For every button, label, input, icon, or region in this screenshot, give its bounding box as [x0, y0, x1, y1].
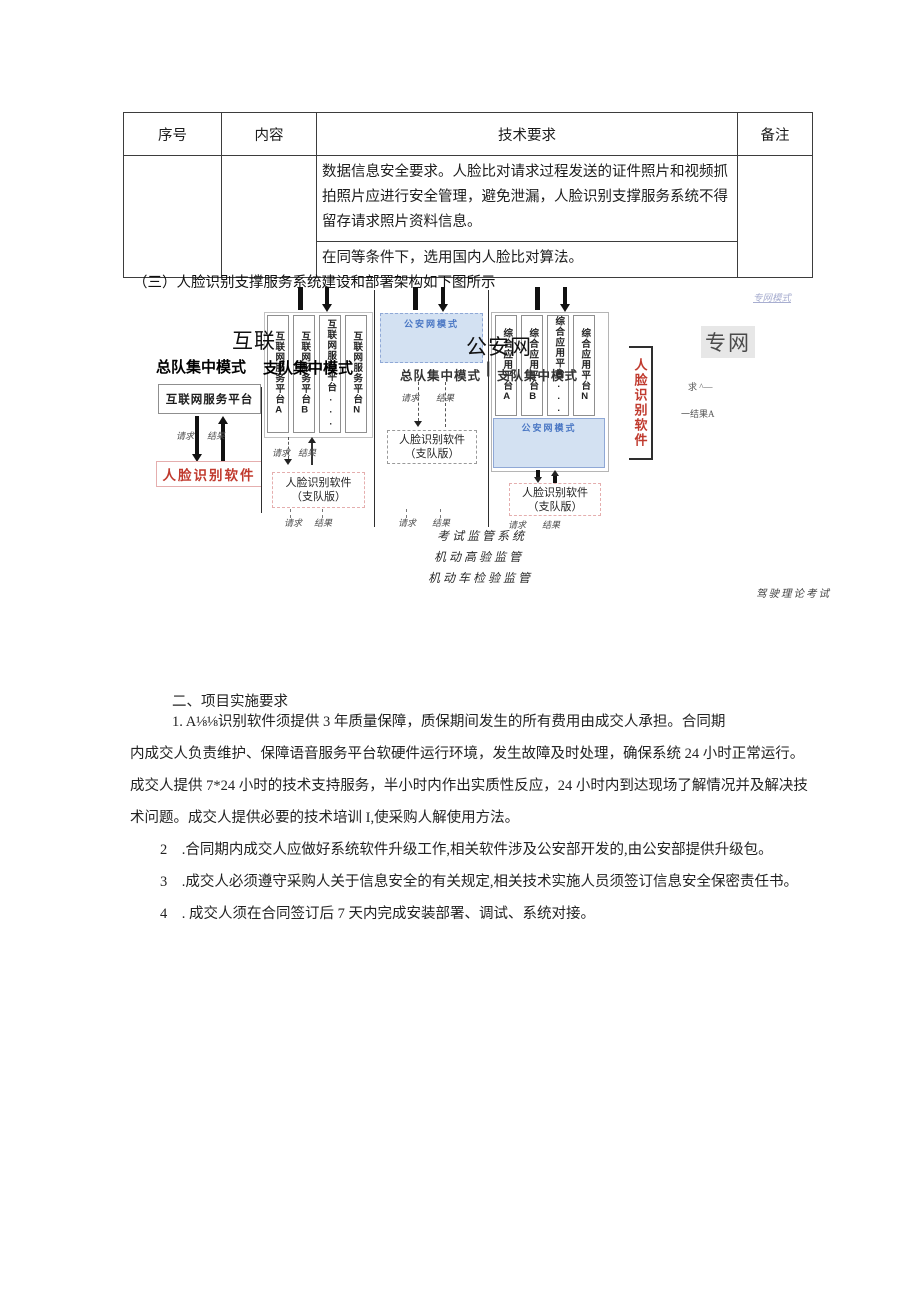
col-header-note: 备注 — [738, 113, 813, 156]
section-divider — [374, 290, 375, 527]
down-arrow — [560, 287, 570, 312]
result-up-arrow — [551, 470, 559, 483]
paragraph-3: 3 .成交人必须遵守采购人关于信息安全的有关规定,相关技术实施人员须签订信息安全… — [160, 870, 798, 891]
mode1-face-software-box: 人脸识别软件 — [156, 461, 262, 487]
down-arrow — [322, 287, 332, 312]
mode2-face-software-line2: （支队版） — [291, 490, 346, 504]
spec-table: 序号 内容 技术要求 备注 数据信息安全要求。人脸比对请求过程发送的证件照片和视… — [123, 112, 813, 278]
request-fragment: 求 ^— — [688, 380, 712, 393]
internet-overlay-text: 互联 — [232, 325, 276, 355]
mode2-face-software-line1: 人脸识别软件 — [286, 476, 352, 490]
mode1-title: 总队集中模式 — [156, 356, 246, 377]
mode2-title: 支队集中模式 — [263, 357, 353, 378]
app-platform-column-label: 综合应用平台N — [579, 328, 589, 403]
mode3-overlay-divider: | — [486, 360, 491, 378]
mode3-face-software-line2: （支队版） — [405, 447, 460, 461]
private-net-mode-link[interactable]: 专网模式 — [753, 290, 791, 304]
result-label: 结果 — [542, 518, 560, 531]
mode3-overlay-right: 支队集中模式 — [497, 365, 578, 384]
section-divider — [261, 387, 262, 513]
request-label: 请求 — [176, 429, 194, 442]
request-label: 请求 — [272, 446, 290, 459]
mode1-platform-box: 互联网服务平台 — [158, 384, 261, 414]
cell-note — [738, 156, 813, 278]
request-down-arrow — [414, 382, 422, 427]
request-label: 请求 — [398, 516, 416, 529]
caption-vehicle-exam-monitor: 机动高验监管 — [434, 548, 524, 565]
col-header-content: 内容 — [222, 113, 317, 156]
body-heading: 二、项目实施要求 — [172, 690, 288, 711]
paragraph-1-line-1: 1. A⅛⅛识别软件须提供 3 年质量保障，质保期间发生的所有费用由成交人承担。… — [172, 710, 725, 731]
result-fragment: 一结果A — [681, 407, 715, 420]
public-net-overlay-text: 公安网 — [466, 331, 532, 361]
up-line — [298, 287, 303, 310]
result-label: 结果 — [298, 446, 316, 459]
result-up-dashed-line — [445, 382, 446, 427]
col-header-requirements: 技术要求 — [317, 113, 738, 156]
table-header-row: 序号 内容 技术要求 备注 — [124, 113, 813, 156]
request-label: 请求 — [284, 516, 302, 529]
architecture-diagram: 互联 公安网 总队集中模式 互联网服务平台 请求 结果 人脸识别软件 互联网服务… — [150, 285, 870, 620]
face-software-vertical-label: 人脸识别软件 — [631, 358, 650, 448]
result-label: 结果 — [314, 516, 332, 529]
paragraph-1-line-4: 术问题。成交人提供必要的技术培训 I,使采购人解使用方法。 — [130, 806, 519, 827]
up-line — [535, 287, 540, 310]
mode3-police-net-header: 公安网模式 — [381, 317, 482, 330]
cell-requirement-1: 数据信息安全要求。人脸比对请求过程发送的证件照片和视频抓拍照片应进行安全管理，避… — [317, 156, 738, 242]
mode4-face-software-box: 人脸识别软件 （支队版） — [509, 483, 601, 516]
paragraph-2: 2 .合同期内成交人应做好系统软件升级工作,相关软件涉及公安部开发的,由公安部提… — [160, 838, 773, 859]
caption-theory-exam: 驾驶理论考试 — [756, 586, 831, 601]
private-net-overlay-text: 专网 — [701, 326, 755, 358]
down-arrow — [438, 287, 448, 312]
paragraph-1-line-2: 内成交人负责维护、保障语音服务平台软硬件运行环境，发生故障及时处理，确保系统 2… — [130, 742, 804, 763]
request-label: 请求 — [508, 518, 526, 531]
mode3-face-software-line1: 人脸识别软件 — [399, 433, 465, 447]
mode4-police-net-card: 公安网模式 — [493, 418, 605, 468]
result-label: 结果 — [207, 429, 225, 442]
result-label: 结果 — [436, 391, 454, 404]
mode3-overlay-left: 总队集中模式 — [400, 365, 481, 384]
face-software-bracket: 人脸识别软件 — [629, 346, 653, 460]
mode4-police-net-header: 公安网模式 — [494, 421, 604, 434]
mode4-face-software-line1: 人脸识别软件 — [522, 486, 588, 500]
mode2-face-software-box: 人脸识别软件 （支队版） — [272, 472, 365, 508]
request-down-arrow — [534, 470, 542, 483]
request-label: 请求 — [401, 391, 419, 404]
mode3-face-software-box: 人脸识别软件 （支队版） — [387, 430, 477, 464]
section-divider — [488, 290, 489, 527]
mode1-face-software-label: 人脸识别软件 — [163, 464, 256, 484]
result-label: 结果 — [432, 516, 450, 529]
mode4-face-software-line2: （支队版） — [528, 500, 583, 514]
paragraph-4: 4 . 成交人须在合同签订后 7 天内完成安装部署、调试、系统对接。 — [160, 902, 595, 923]
table-row: 数据信息安全要求。人脸比对请求过程发送的证件照片和视频抓拍照片应进行安全管理，避… — [124, 156, 813, 242]
cell-seq — [124, 156, 222, 278]
caption-vehicle-inspection-monitor: 机动车检验监管 — [428, 569, 533, 586]
up-line — [413, 287, 418, 310]
paragraph-1-line-3: 成交人提供 7*24 小时的技术支持服务，半小时内作出实质性反应，24 小时内到… — [130, 774, 808, 795]
document-page: 序号 内容 技术要求 备注 数据信息安全要求。人脸比对请求过程发送的证件照片和视… — [0, 0, 920, 1301]
cell-content — [222, 156, 317, 278]
col-header-seq: 序号 — [124, 113, 222, 156]
